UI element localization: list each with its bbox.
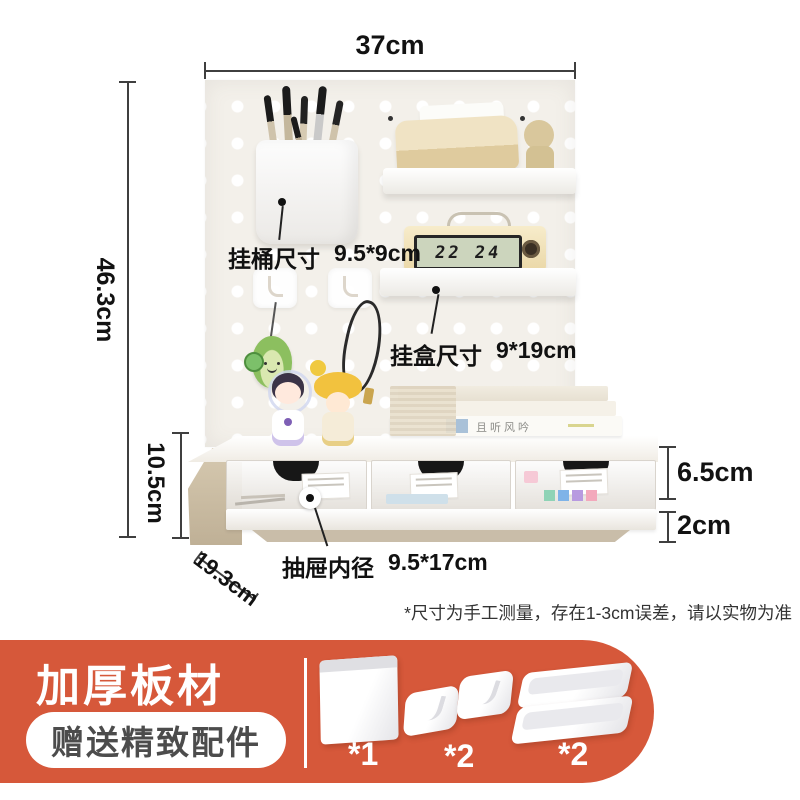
dim-tick — [659, 446, 676, 448]
drawer-size-callout: 抽屉内径 9.5*17cm — [282, 549, 488, 583]
duck-hat-doll — [312, 372, 364, 448]
desk-bottom-rail — [226, 509, 656, 530]
banner-title: 加厚板材 — [36, 650, 224, 714]
round-charm — [244, 352, 264, 372]
drawer-size-label: 抽屉内径 — [282, 549, 374, 583]
astronaut-doll — [264, 370, 312, 448]
dim-base-height: 10.5cm — [142, 428, 168, 538]
box-size-callout: 挂盒尺寸 9*19cm — [390, 337, 577, 371]
book-page-edges — [390, 386, 456, 436]
dim-bottom-clearance: 2cm — [677, 510, 731, 541]
hanging-bucket — [256, 140, 358, 244]
box-size-label: 挂盒尺寸 — [390, 337, 482, 371]
accessory-count: *2 — [558, 736, 588, 773]
dim-base-depth: 19.3cm — [178, 539, 274, 620]
callout-dot — [432, 286, 440, 294]
dim-tick — [119, 81, 136, 83]
peg-screw-icon — [388, 116, 393, 121]
bucket-size-callout: 挂桶尺寸 9.5*9cm — [228, 240, 421, 274]
hook-thumb — [403, 685, 459, 738]
desk-under-shadow — [252, 530, 630, 542]
clock-knob-icon — [522, 240, 540, 258]
dim-tick — [119, 536, 136, 538]
box-size-value: 9*19cm — [496, 337, 577, 371]
book-stack: 且听风吟 — [388, 384, 622, 440]
accessory-count: *1 — [348, 736, 378, 773]
drawer-right — [515, 460, 656, 510]
bucket-size-value: 9.5*9cm — [334, 240, 421, 274]
dim-line-base — [180, 433, 182, 538]
dim-tick — [172, 537, 189, 539]
banner-subtitle: 赠送精致配件 — [51, 716, 261, 764]
dim-top-width: 37cm — [320, 30, 460, 61]
bucket-thumb — [319, 655, 398, 745]
dim-tick — [204, 62, 206, 79]
clock-lcd: 22 24 — [414, 235, 522, 270]
banner-divider — [304, 658, 307, 768]
drawer-row — [226, 460, 656, 510]
drawer-left — [226, 460, 367, 510]
clock-time: 22 24 — [434, 243, 503, 263]
dim-tick — [659, 498, 676, 500]
hook-thumb — [456, 670, 514, 721]
dim-line-drawer-face — [667, 447, 669, 500]
drawer-size-value: 9.5*17cm — [388, 549, 488, 583]
drawer-middle — [371, 460, 512, 510]
dim-tick — [172, 432, 189, 434]
dim-line-top — [205, 70, 575, 72]
wall-shelf-top — [383, 168, 576, 194]
peg-screw-icon — [520, 116, 525, 121]
clutch-bag — [395, 115, 520, 175]
bucket-size-label: 挂桶尺寸 — [228, 240, 320, 274]
callout-dot — [278, 198, 286, 206]
dim-drawer-face-height: 6.5cm — [677, 457, 754, 488]
dim-tick — [574, 62, 576, 79]
callout-dot — [306, 494, 314, 502]
dim-board-height: 46.3cm — [90, 235, 120, 365]
accessory-count: *2 — [444, 738, 474, 775]
banner-subtitle-pill: 赠送精致配件 — [26, 712, 286, 768]
dim-tick — [659, 511, 676, 513]
product-infographic: 22 24 且听风吟 — [0, 0, 800, 800]
promo-banner: 加厚板材 赠送精致配件 *1 *2 *2 — [0, 640, 654, 783]
dim-tick — [659, 541, 676, 543]
disclaimer-text: *尺寸为手工测量，存在1-3cm误差，请以实物为准 — [356, 600, 792, 625]
book-spine-title: 且听风吟 — [476, 419, 532, 435]
dim-line-left — [127, 82, 129, 537]
dim-line-clearance — [667, 512, 669, 543]
